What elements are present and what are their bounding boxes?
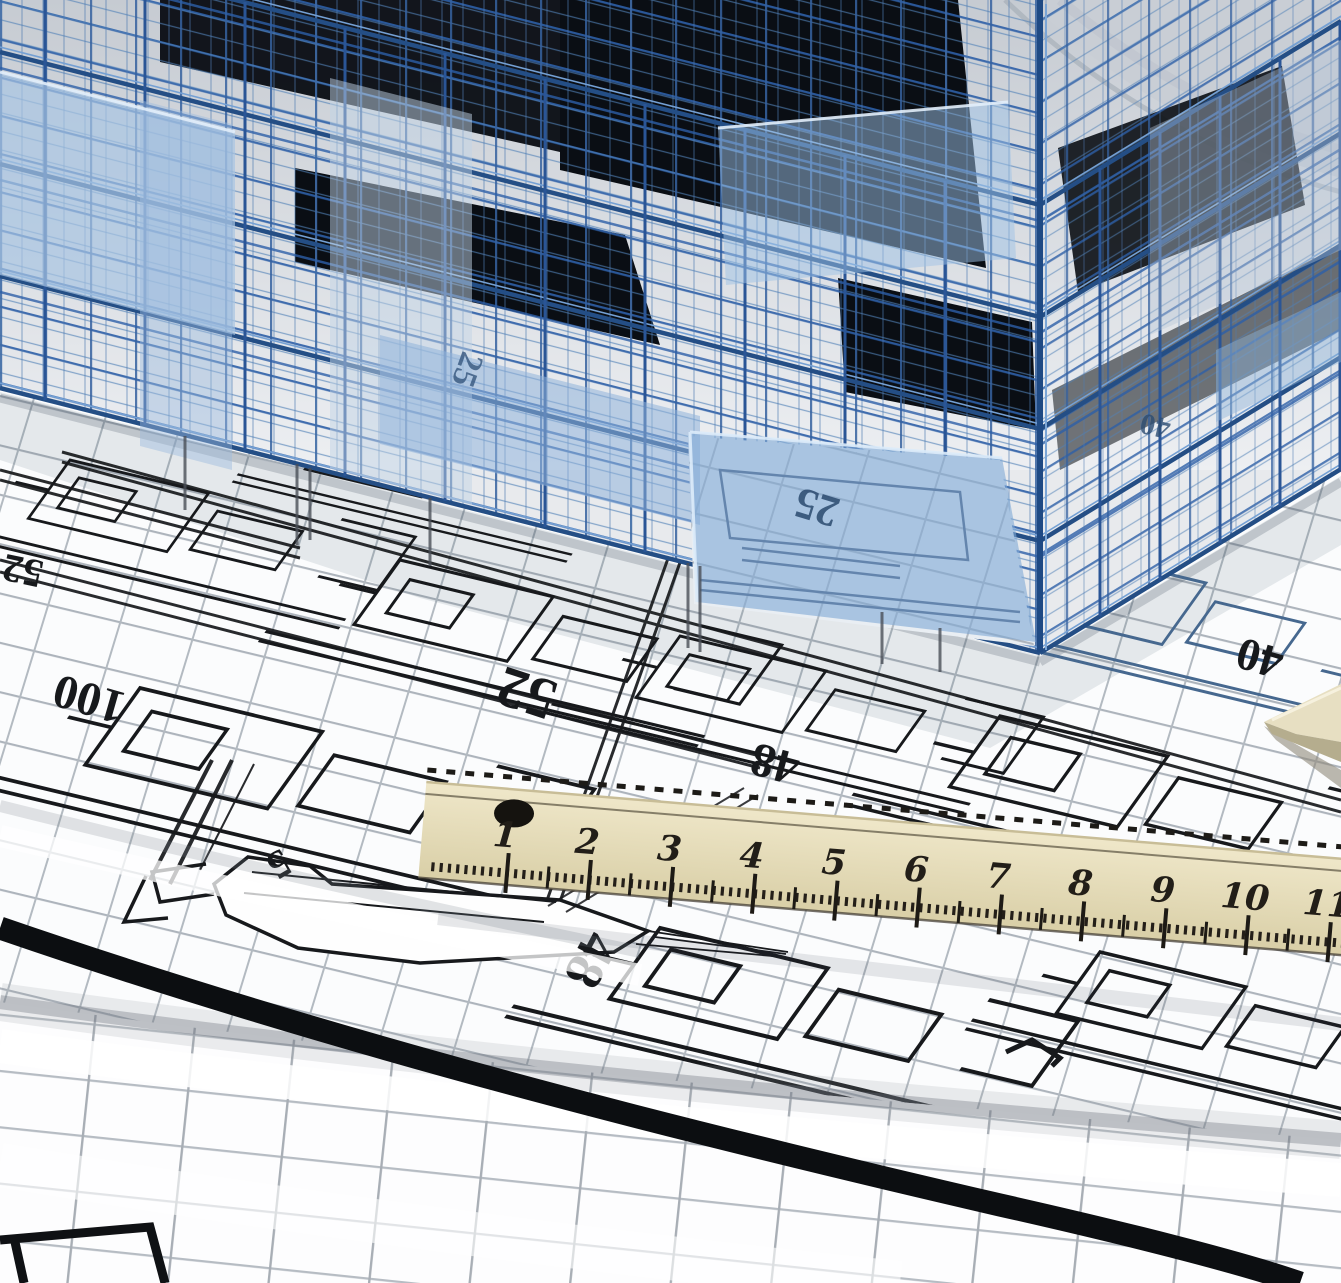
ruler-number: 10 [1219,875,1271,920]
ruler-number: 4 [738,835,766,878]
blueprint-dimension-label: 52 [0,545,47,597]
scene-render: 52 100 52 48 5 48 40 1 2 3 [0,0,1341,1283]
glass-panel [140,100,232,470]
ruler-number: 8 [1066,862,1095,905]
ruler-number: 11 [1301,882,1341,927]
ruler-number: 3 [656,828,684,871]
ruler-number: 9 [1149,869,1177,912]
ruler-number: 1 [491,814,519,857]
scene: 52 100 52 48 5 48 40 1 2 3 [0,0,1341,1283]
glass-panel [718,102,1016,285]
ruler-number: 5 [820,841,848,884]
ruler-number: 6 [902,848,930,891]
ruler-number: 2 [573,821,602,864]
ruler-number: 7 [985,855,1013,898]
